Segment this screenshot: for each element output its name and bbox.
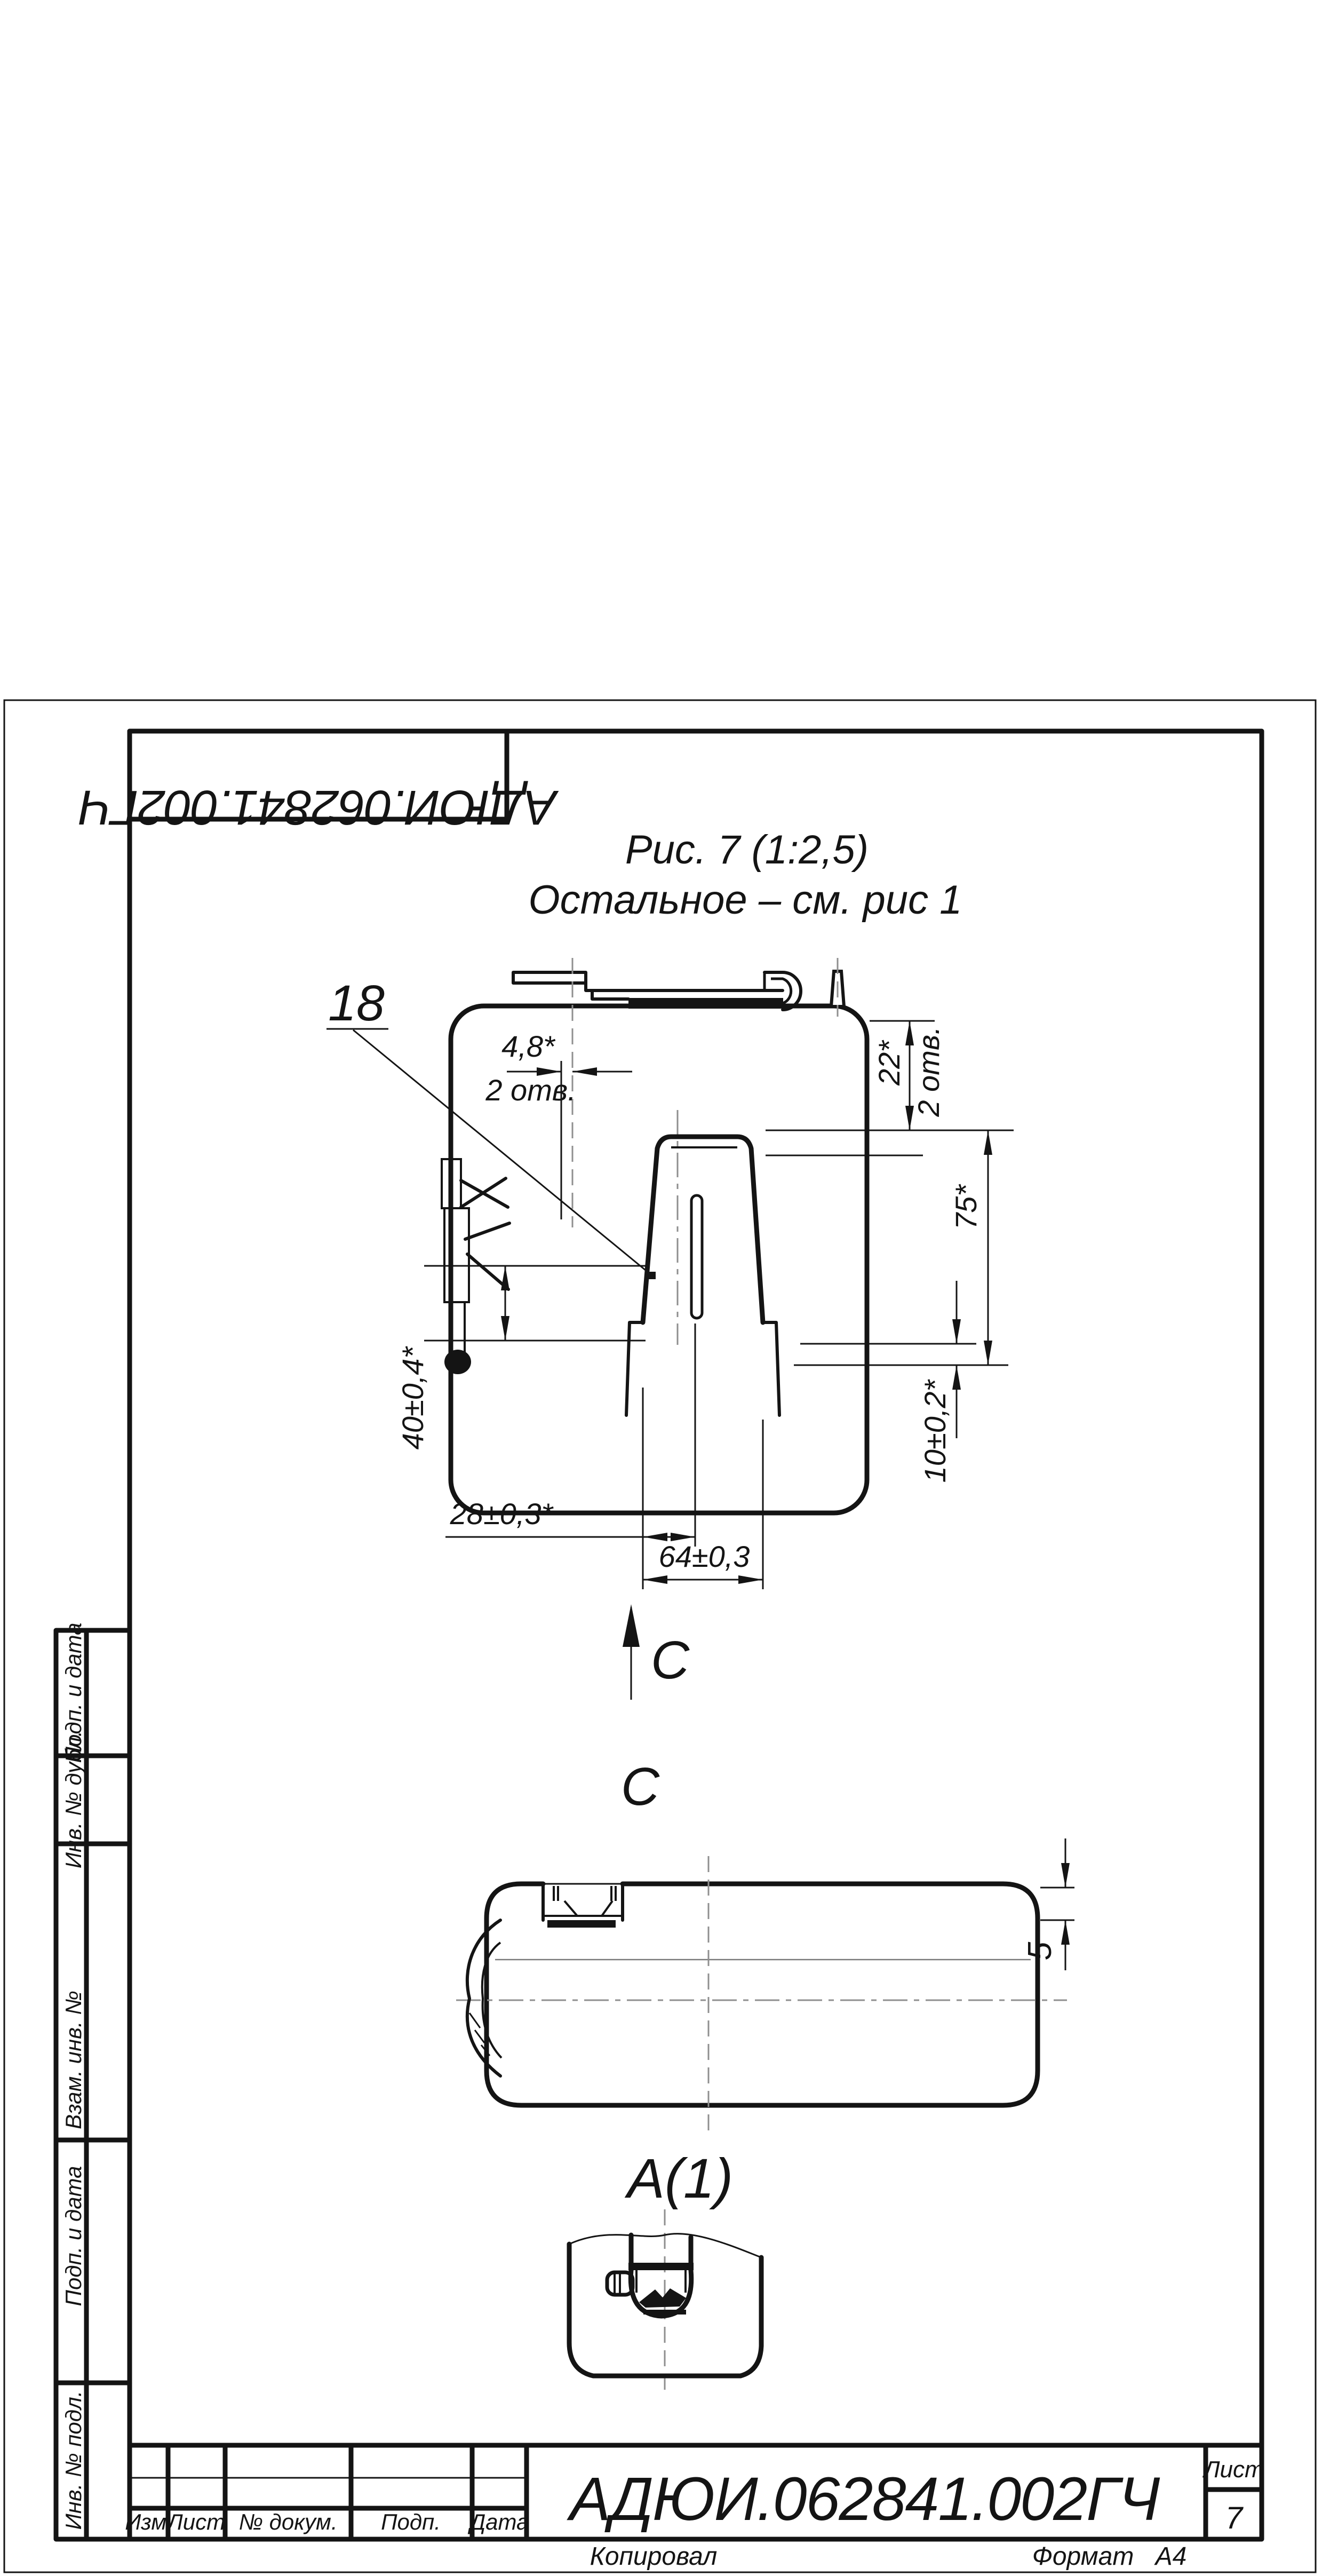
col-data: Дата [468,2509,529,2534]
dim-28: 28±0,3* [445,1497,695,1541]
col-list: Лист [166,2509,225,2534]
caption-line1: Рис. 7 (1:2,5) [625,827,869,873]
dim-75-value: 75* [949,1184,983,1230]
caption-line2: Остальное – см. рис 1 [529,877,962,923]
dim-22: 22* 2 отв. [872,1021,945,1130]
well-slot [691,1195,702,1318]
sidebar-label-inv-dubl: Инв. № дубл. [61,1731,86,1868]
dim-22-note: 2 отв. [912,1026,945,1117]
col-doc: № докум. [238,2509,337,2534]
detail-bracket [607,2235,694,2316]
col-podp: Подп. [381,2509,441,2534]
vent-nub [831,958,844,1017]
figure-caption: Рис. 7 (1:2,5) Остальное – см. рис 1 [529,827,962,923]
view-arrow-label: С [651,1630,690,1690]
sidebar-stamps: Подп. и дата Инв. № дубл. Взам. инв. № П… [56,1623,130,2539]
top-recess [543,1884,623,1928]
detail-title: А(1) [624,2147,733,2210]
dim-10-value: 10±0,2* [918,1378,952,1483]
dim-4-8-value: 4,8* [501,1029,556,1063]
leader-target [648,1272,656,1279]
dim-22-value: 22* [872,1040,906,1086]
view-arrow-c: С [623,1604,690,1700]
dim-64-value: 64±0,3 [659,1540,750,1573]
sidebar-label-inv-podl: Инв. № подл. [61,2391,86,2530]
section-title: С [621,1757,660,1817]
part-callout: 18 [326,975,656,1279]
format-label: Формат [1032,2542,1134,2571]
format-value: А4 [1154,2542,1187,2571]
part-number-label: 18 [328,975,385,1032]
title-doc-number: АДЮИ.062841.002ГЧ [567,2465,1160,2533]
dim-4-8: 4,8* 2 отв. [485,1029,632,1107]
dim-28-value: 28±0,3* [450,1497,554,1531]
section-body-outline [487,1884,1038,2105]
col-izm: Изм. [125,2509,173,2534]
dim-10: 10±0,2* [918,1281,961,1483]
main-view: 18 4,8* 2 отв. [326,958,1014,1589]
dim-64: 64±0,3 [643,1540,763,1584]
dim-4-8-note: 2 отв. [485,1073,576,1107]
sidebar-label-podp-i-data-2: Подп. и дата [61,2166,86,2306]
sheet-header: Лист [1202,2456,1264,2483]
title-block: Изм. Лист № докум. Подп. Дата АДЮИ.06284… [125,2445,1264,2571]
sheet-number: 7 [1225,2501,1244,2535]
drawing-canvas: АДЮИ.062841.002ГЧ Подп. и дата Инв. № ду… [0,0,1330,2576]
section-view: С [456,1757,1074,2132]
dim-40-value: 40±0,4* [396,1345,429,1449]
sidebar-label-vzam-inv: Взам. инв. № [61,1991,86,2129]
dim-5: 5 [1022,1838,1074,1970]
doc-number-rotated: АДЮИ.062841.002ГЧ [78,780,559,835]
copied-label: Копировал [590,2542,718,2571]
dim-5-value: 5 [1022,1941,1058,1960]
detail-view-a1: А(1) [569,2147,761,2391]
